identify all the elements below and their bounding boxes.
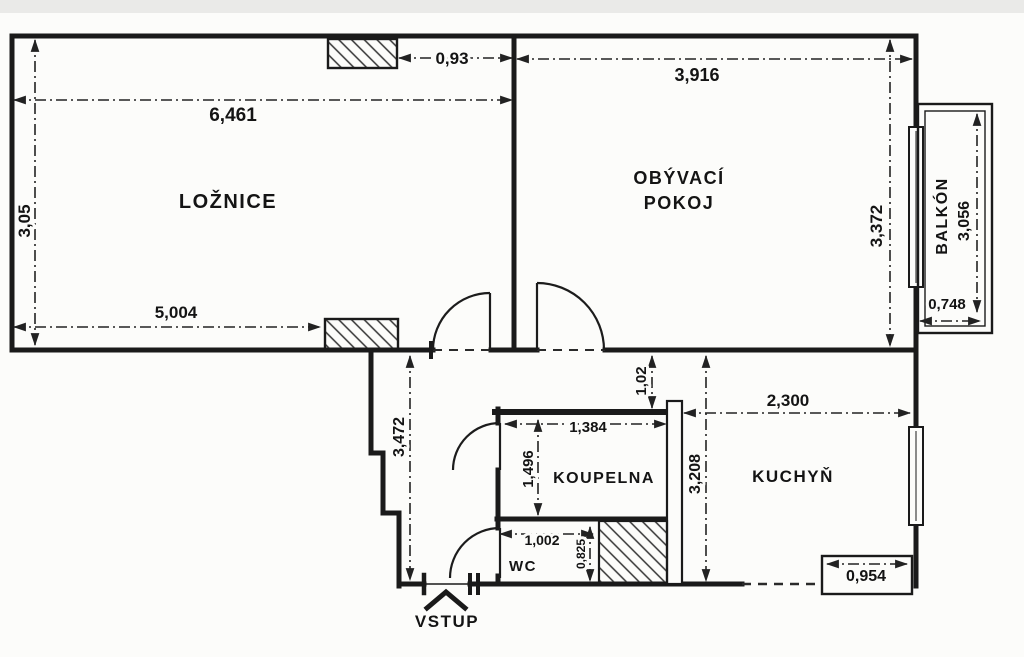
dim-balcony-depth: 0,748 [928, 296, 966, 313]
dim-hall-length: 3,472 [391, 417, 408, 457]
bathroom-door-swing [453, 423, 500, 470]
dim-flue-offset: 0,93 [435, 49, 468, 68]
bedroom-door-swing [433, 293, 490, 350]
outer-walls [12, 36, 916, 586]
dim-corridor-width: 1,02 [633, 366, 650, 395]
flue-top [328, 39, 397, 68]
scan-edge-strip [0, 0, 1024, 13]
dim-bedroom-wall: 5,004 [155, 303, 198, 322]
room-label-wc: WC [509, 558, 537, 575]
entrance-marks [424, 575, 478, 608]
bathroom-kitchen-wall [667, 401, 682, 584]
labels: LOŽNICE OBÝVACÍ POKOJ BALKÓN KOUPELNA KU… [15, 49, 973, 631]
dim-living-width: 3,916 [674, 65, 719, 85]
floor-plan-drawing: LOŽNICE OBÝVACÍ POKOJ BALKÓN KOUPELNA KU… [0, 0, 1024, 657]
entrance-chevron-icon [427, 592, 465, 608]
dim-balcony-length: 3,056 [956, 201, 973, 241]
dim-wc-depth: 0,825 [574, 539, 588, 569]
wc-door-swing [450, 528, 500, 578]
dim-bathroom-depth: 1,496 [520, 450, 537, 488]
dim-bedroom-depth: 3,05 [15, 204, 34, 237]
room-label-living-1: OBÝVACÍ [633, 167, 724, 188]
dim-kitchen-depth: 3,208 [687, 454, 704, 494]
floor-plan-page: LOŽNICE OBÝVACÍ POKOJ BALKÓN KOUPELNA KU… [0, 0, 1024, 657]
entrance-label: VSTUP [415, 612, 479, 631]
room-label-kitchen: KUCHYŇ [752, 467, 834, 486]
dim-living-depth: 3,372 [867, 205, 886, 248]
dim-kitchen-width: 2,300 [767, 391, 810, 410]
room-label-bedroom: LOŽNICE [179, 189, 277, 213]
room-label-bathroom: KOUPELNA [553, 470, 655, 487]
dim-bedroom-width: 6,461 [209, 105, 257, 126]
flue-bedroom-wall [325, 319, 398, 349]
room-label-balcony: BALKÓN [932, 177, 951, 254]
dim-wc-width: 1,002 [524, 532, 559, 548]
living-door-swing [537, 283, 604, 350]
dim-bathroom-width: 1,384 [569, 419, 607, 436]
room-label-living-2: POKOJ [644, 193, 715, 213]
shaft-by-wc [599, 521, 667, 583]
dim-kitchen-recess: 0,954 [846, 568, 886, 585]
